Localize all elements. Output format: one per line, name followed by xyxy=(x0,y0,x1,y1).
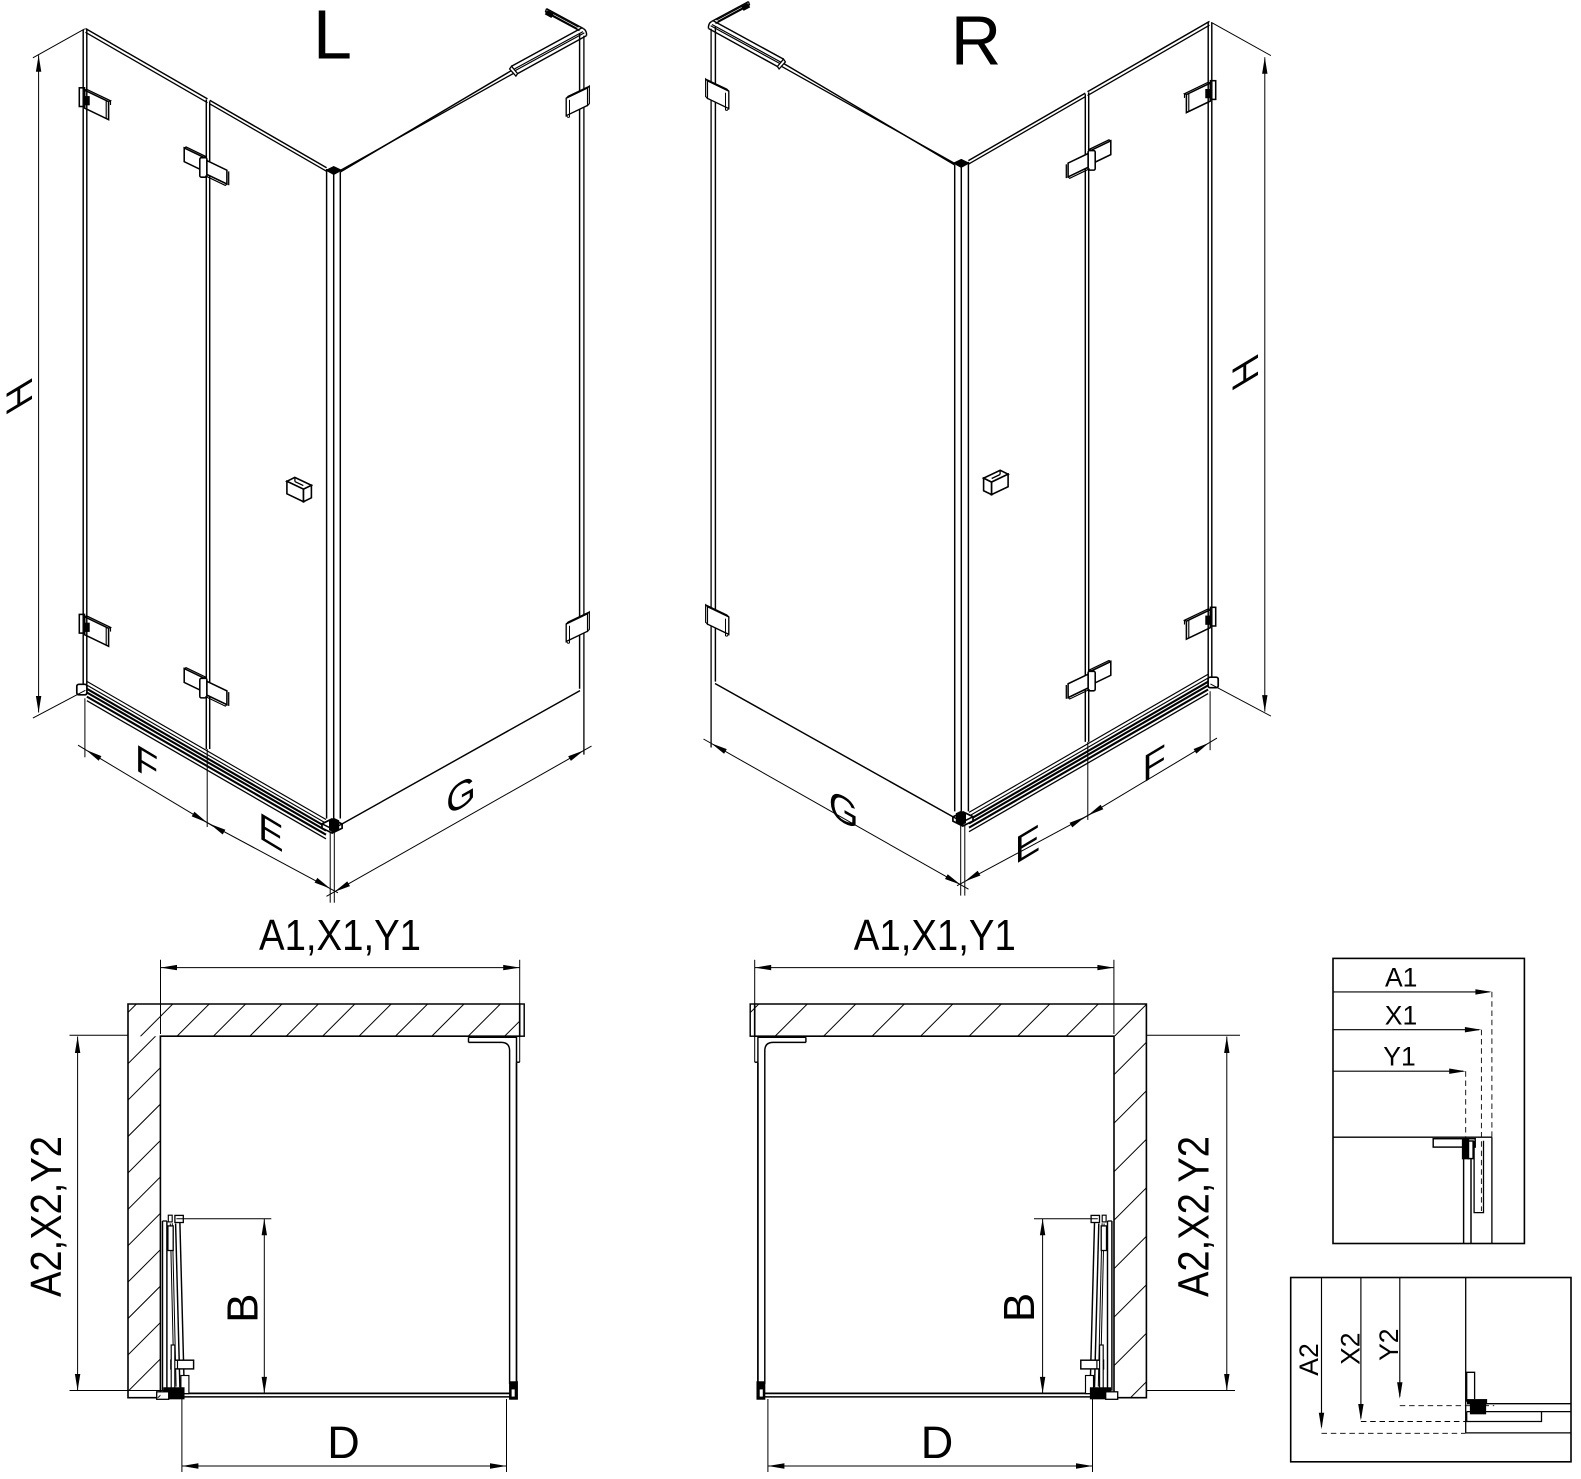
svg-text:B: B xyxy=(218,1294,267,1323)
svg-text:D: D xyxy=(327,1417,360,1468)
svg-text:A1,X1,Y1: A1,X1,Y1 xyxy=(259,911,421,960)
svg-text:Y2: Y2 xyxy=(1374,1328,1404,1360)
svg-text:R: R xyxy=(951,2,1002,80)
svg-text:X2: X2 xyxy=(1335,1332,1365,1364)
svg-text:A2,X2,Y2: A2,X2,Y2 xyxy=(22,1136,71,1297)
svg-text:A2,X2,Y2: A2,X2,Y2 xyxy=(1170,1136,1219,1297)
svg-text:X1: X1 xyxy=(1385,1000,1417,1030)
svg-text:L: L xyxy=(313,0,352,74)
svg-text:Y1: Y1 xyxy=(1383,1041,1415,1071)
svg-text:A1,X1,Y1: A1,X1,Y1 xyxy=(854,911,1016,960)
svg-text:D: D xyxy=(921,1417,954,1468)
svg-text:A1: A1 xyxy=(1385,963,1417,993)
svg-text:B: B xyxy=(995,1293,1044,1322)
svg-text:A2: A2 xyxy=(1294,1343,1324,1375)
